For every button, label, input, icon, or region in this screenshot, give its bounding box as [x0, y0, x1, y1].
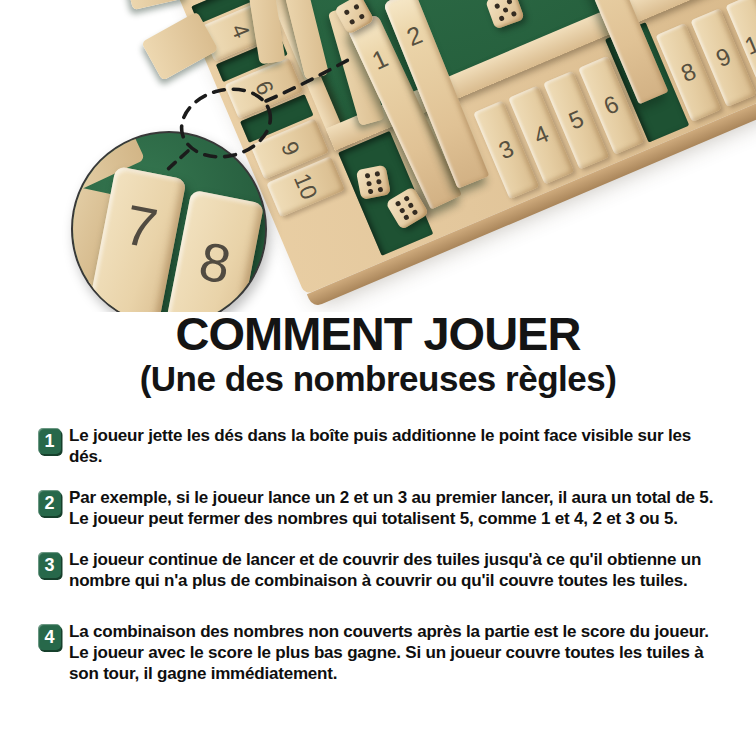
instruction-item-1: 1 Le joueur jette les dés dans la boîte …: [38, 425, 722, 467]
die: [356, 165, 391, 200]
tile-number: 7: [99, 191, 162, 312]
zoom-inset-circle: 7 8: [71, 131, 267, 312]
tile-number: 4: [530, 119, 553, 150]
tile-number: 6: [249, 77, 279, 99]
step-badge-4: 4: [38, 624, 61, 650]
tile-number: 8: [677, 57, 700, 88]
instruction-item-4: 4 La combinaison des nombres non couvert…: [38, 621, 722, 684]
instructions-list: 1 Le joueur jette les dés dans la boîte …: [38, 425, 722, 685]
tile-number: 6: [600, 90, 623, 121]
step-badge-2: 2: [38, 490, 61, 516]
flipped-tile: [141, 11, 218, 81]
step-badge-1: 1: [38, 428, 61, 454]
instruction-item-3: 3 Le joueur continue de lancer et de cou…: [38, 549, 722, 591]
instruction-text: Le joueur jette les dés dans la boîte pu…: [69, 425, 722, 467]
tile-number: 9: [275, 138, 305, 160]
tile-number: 10: [288, 170, 323, 204]
page-subtitle: (Une des nombreuses règles): [0, 361, 756, 398]
instruction-text: Le joueur continue de lancer et de couvr…: [69, 549, 722, 591]
page-title: COMMENT JOUER: [0, 310, 756, 359]
flipped-tile: [124, 0, 190, 10]
instruction-text: La combinaison des nombres non couverts …: [69, 621, 722, 684]
tile-number: 3: [495, 134, 518, 165]
tile-number: 5: [565, 105, 588, 136]
step-badge-3: 3: [38, 552, 61, 578]
tile-number: 4: [225, 19, 255, 41]
tile-number: 10: [741, 25, 756, 61]
product-photo: 4 6 9 10 1 2 7 3 4 5 6 8 9 10: [0, 0, 756, 312]
tile-number: 9: [712, 42, 735, 73]
instruction-text: Par exemple, si le joueur lance un 2 et …: [69, 487, 722, 529]
tile-number: 8: [177, 229, 235, 312]
title-block: COMMENT JOUER (Une des nombreuses règles…: [0, 310, 756, 398]
instruction-item-2: 2 Par exemple, si le joueur lance un 2 e…: [38, 487, 722, 529]
